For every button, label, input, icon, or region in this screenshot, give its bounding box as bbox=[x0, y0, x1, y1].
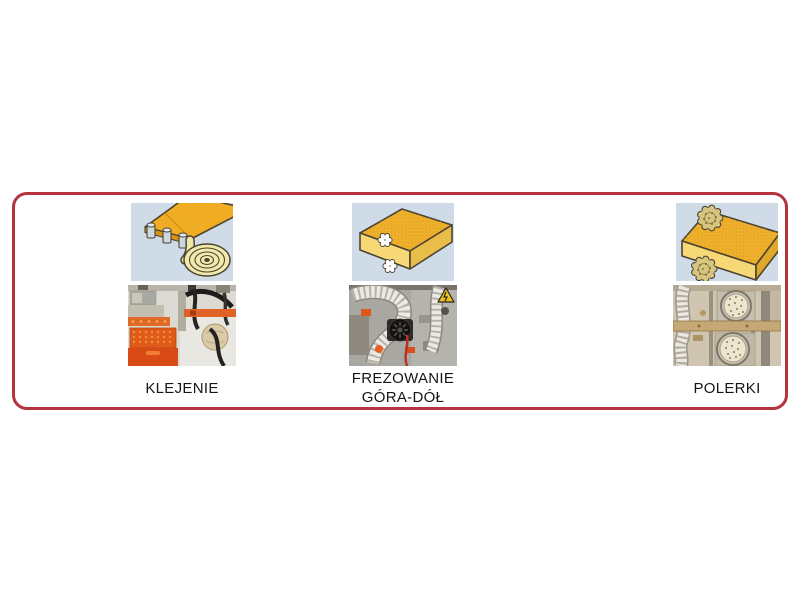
process-label-line: FREZOWANIE bbox=[352, 369, 454, 388]
process-label: POLERKI bbox=[647, 366, 800, 410]
polerki-illustration bbox=[676, 203, 778, 281]
klejenie-photo bbox=[128, 285, 236, 366]
edge-band-coil bbox=[184, 244, 230, 276]
router-motor bbox=[387, 319, 413, 341]
klejenie-illustration bbox=[131, 203, 233, 281]
process-label-line: KLEJENIE bbox=[145, 379, 218, 398]
glue-roller-block bbox=[130, 328, 176, 348]
upper-polisher bbox=[717, 291, 755, 321]
frezowanie-photo bbox=[349, 285, 457, 366]
frezowanie-illustration bbox=[352, 203, 454, 281]
page: KLEJENIE bbox=[0, 0, 800, 600]
process-card-polerki: POLERKI bbox=[673, 203, 781, 410]
bottom-milling-cutter bbox=[383, 260, 397, 273]
lower-polisher bbox=[715, 333, 755, 366]
process-label: KLEJENIE bbox=[102, 366, 262, 410]
process-label-line: POLERKI bbox=[693, 379, 760, 398]
process-card-frezowanie: FREZOWANIE GÓRA-DÓŁ bbox=[349, 203, 457, 410]
right-hose bbox=[431, 287, 439, 351]
top-milling-cutter bbox=[378, 234, 392, 247]
process-label: FREZOWANIE GÓRA-DÓŁ bbox=[323, 366, 483, 410]
polerki-photo bbox=[673, 285, 781, 366]
process-label-line: GÓRA-DÓŁ bbox=[362, 388, 444, 407]
process-card-klejenie: KLEJENIE bbox=[128, 203, 236, 410]
